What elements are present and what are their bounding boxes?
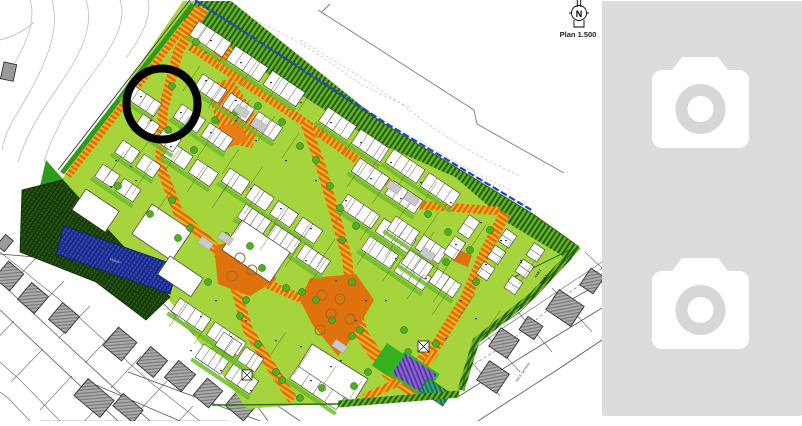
svg-text:Plan 1.500: Plan 1.500 <box>560 30 597 39</box>
svg-text:N: N <box>576 9 583 19</box>
